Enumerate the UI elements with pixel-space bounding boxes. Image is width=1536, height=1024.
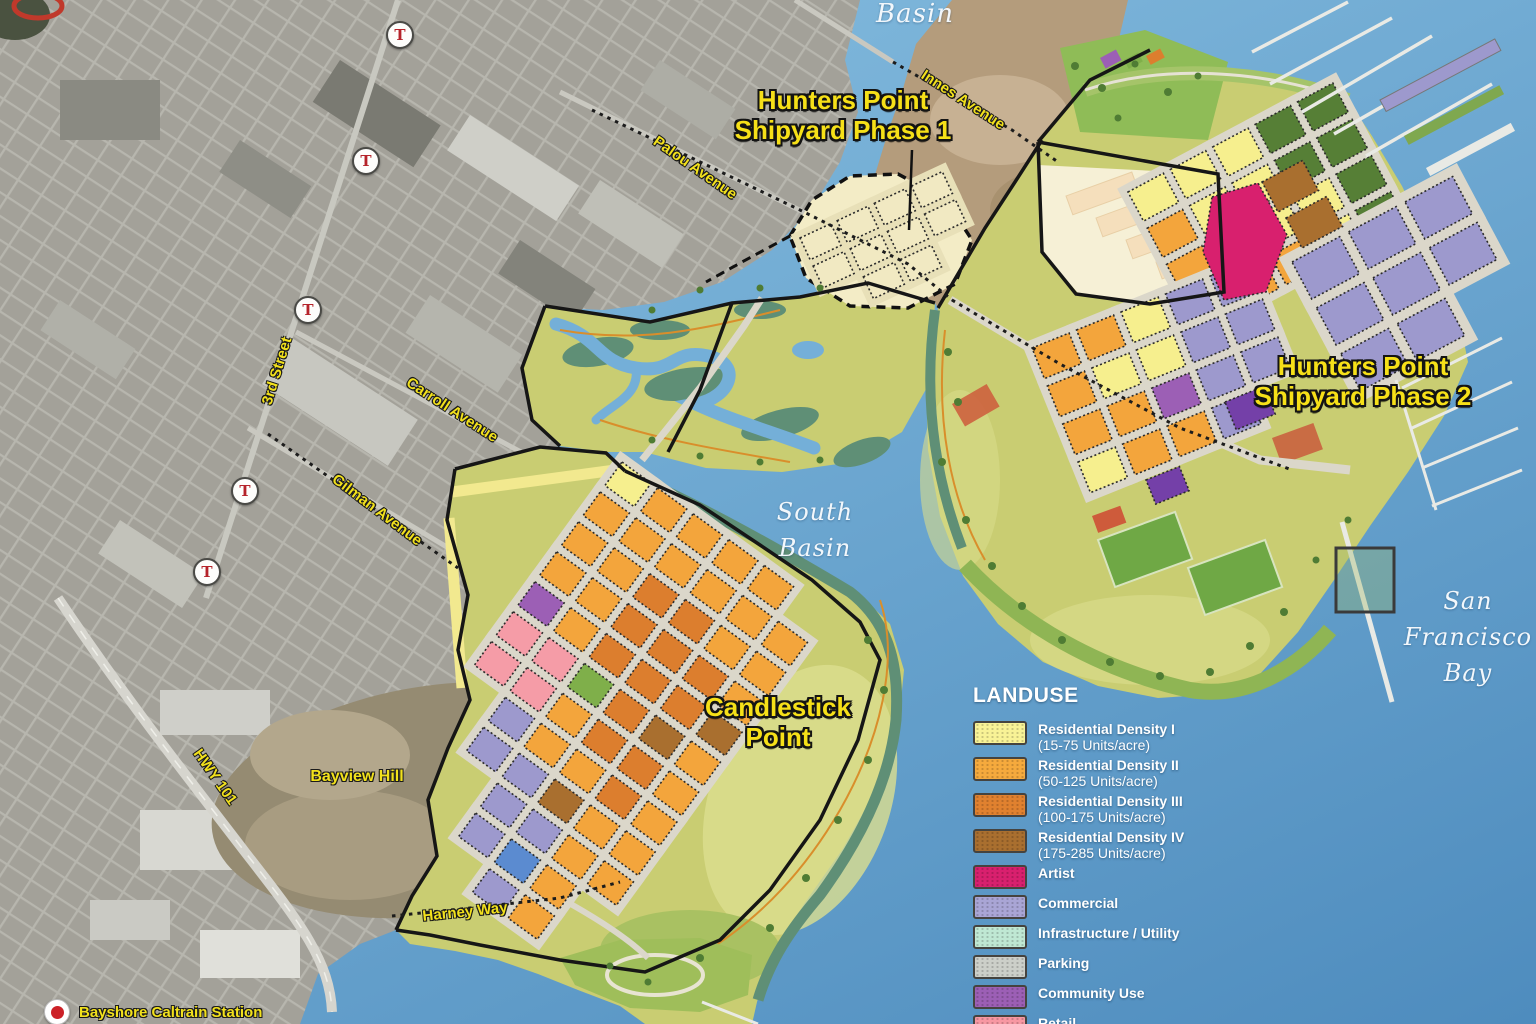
phase2-title: Hunters Point Shipyard Phase 2 bbox=[1255, 351, 1472, 411]
legend-swatch bbox=[973, 955, 1027, 979]
t-letter: T bbox=[201, 565, 212, 580]
phase1-title: Hunters Point Shipyard Phase 1 bbox=[735, 85, 952, 145]
legend-label: Residential Density II bbox=[1038, 757, 1179, 773]
map-svg bbox=[0, 0, 1536, 1024]
legend-item: Residential Density I (15-75 Units/acre) bbox=[973, 721, 1283, 753]
legend-label: Residential Density IV bbox=[1038, 829, 1184, 845]
legend-label: Artist bbox=[1038, 865, 1075, 881]
legend-title: LANDUSE bbox=[973, 684, 1283, 708]
legend-label: Residential Density I bbox=[1038, 721, 1175, 737]
legend-item: Residential Density III (100-175 Units/a… bbox=[973, 793, 1283, 825]
legend-sublabel: (15-75 Units/acre) bbox=[1038, 737, 1175, 753]
legend-swatch bbox=[973, 865, 1027, 889]
legend-label: Parking bbox=[1038, 955, 1089, 971]
basin-water-label: Basin bbox=[876, 0, 954, 32]
drydock bbox=[1336, 548, 1394, 612]
legend-item: Residential Density II (50-125 Units/acr… bbox=[973, 757, 1283, 789]
t-letter: T bbox=[239, 484, 250, 499]
transit-station-marker: T bbox=[386, 21, 414, 49]
legend-item: Parking bbox=[973, 955, 1283, 979]
transit-station-marker: T bbox=[352, 147, 380, 175]
transit-station-marker: T bbox=[294, 296, 322, 324]
legend-swatch bbox=[973, 829, 1027, 853]
south-basin-line2: Basin bbox=[777, 530, 853, 566]
t-letter: T bbox=[360, 154, 371, 169]
legend-item: Commercial bbox=[973, 895, 1283, 919]
legend-swatch bbox=[973, 925, 1027, 949]
phase1-title-line1: Hunters Point bbox=[735, 85, 952, 115]
south-basin-label: South Basin bbox=[777, 494, 853, 566]
legend-sublabel: (175-285 Units/acre) bbox=[1038, 845, 1184, 861]
legend-item: Community Use bbox=[973, 985, 1283, 1009]
map-canvas: Basin Hunters Point Shipyard Phase 1 Hun… bbox=[0, 0, 1536, 1024]
bayview-hill-label: Bayview Hill bbox=[310, 768, 403, 786]
phase2-title-line1: Hunters Point bbox=[1255, 351, 1472, 381]
legend-sublabel: (50-125 Units/acre) bbox=[1038, 773, 1179, 789]
legend-label: Retail bbox=[1038, 1015, 1076, 1024]
legend-item: Infrastructure / Utility bbox=[973, 925, 1283, 949]
legend-item: Retail bbox=[973, 1015, 1283, 1024]
candlestick-title-line2: Point bbox=[705, 722, 851, 752]
legend-label: Infrastructure / Utility bbox=[1038, 925, 1180, 941]
legend-sublabel: (100-175 Units/acre) bbox=[1038, 809, 1183, 825]
pier-white-strip bbox=[1426, 123, 1515, 176]
legend-swatch bbox=[973, 721, 1027, 745]
transit-station-marker: T bbox=[193, 558, 221, 586]
t-letter: T bbox=[302, 303, 313, 318]
legend-swatch bbox=[973, 1015, 1027, 1024]
legend-label: Residential Density III bbox=[1038, 793, 1183, 809]
candlestick-title-line1: Candlestick bbox=[705, 692, 851, 722]
t-letter: T bbox=[394, 28, 405, 43]
transit-station-marker: T bbox=[231, 477, 259, 505]
sf-bay-line2: Francisco bbox=[1404, 619, 1532, 655]
legend-swatch bbox=[973, 985, 1027, 1009]
legend-swatch bbox=[973, 793, 1027, 817]
south-basin-line1: South bbox=[777, 494, 853, 530]
legend-label: Community Use bbox=[1038, 985, 1145, 1001]
legend-label: Commercial bbox=[1038, 895, 1118, 911]
phase2-title-line2: Shipyard Phase 2 bbox=[1255, 381, 1472, 411]
legend-item: Residential Density IV (175-285 Units/ac… bbox=[973, 829, 1283, 861]
bayshore-station-label: Bayshore Caltrain Station bbox=[79, 1004, 262, 1021]
caltrain-station-icon bbox=[44, 999, 70, 1024]
landuse-legend: LANDUSE Residential Density I (15-75 Uni… bbox=[973, 684, 1283, 1024]
sf-bay-line3: Bay bbox=[1404, 655, 1532, 691]
legend-item: Artist bbox=[973, 865, 1283, 889]
bayshore-station: Bayshore Caltrain Station bbox=[44, 999, 262, 1024]
sf-bay-label: San Francisco Bay bbox=[1404, 583, 1532, 691]
legend-swatch bbox=[973, 757, 1027, 781]
phase1-title-line2: Shipyard Phase 1 bbox=[735, 115, 952, 145]
candlestick-title: Candlestick Point bbox=[705, 692, 851, 752]
sf-bay-line1: San bbox=[1404, 583, 1532, 619]
legend-swatch bbox=[973, 895, 1027, 919]
